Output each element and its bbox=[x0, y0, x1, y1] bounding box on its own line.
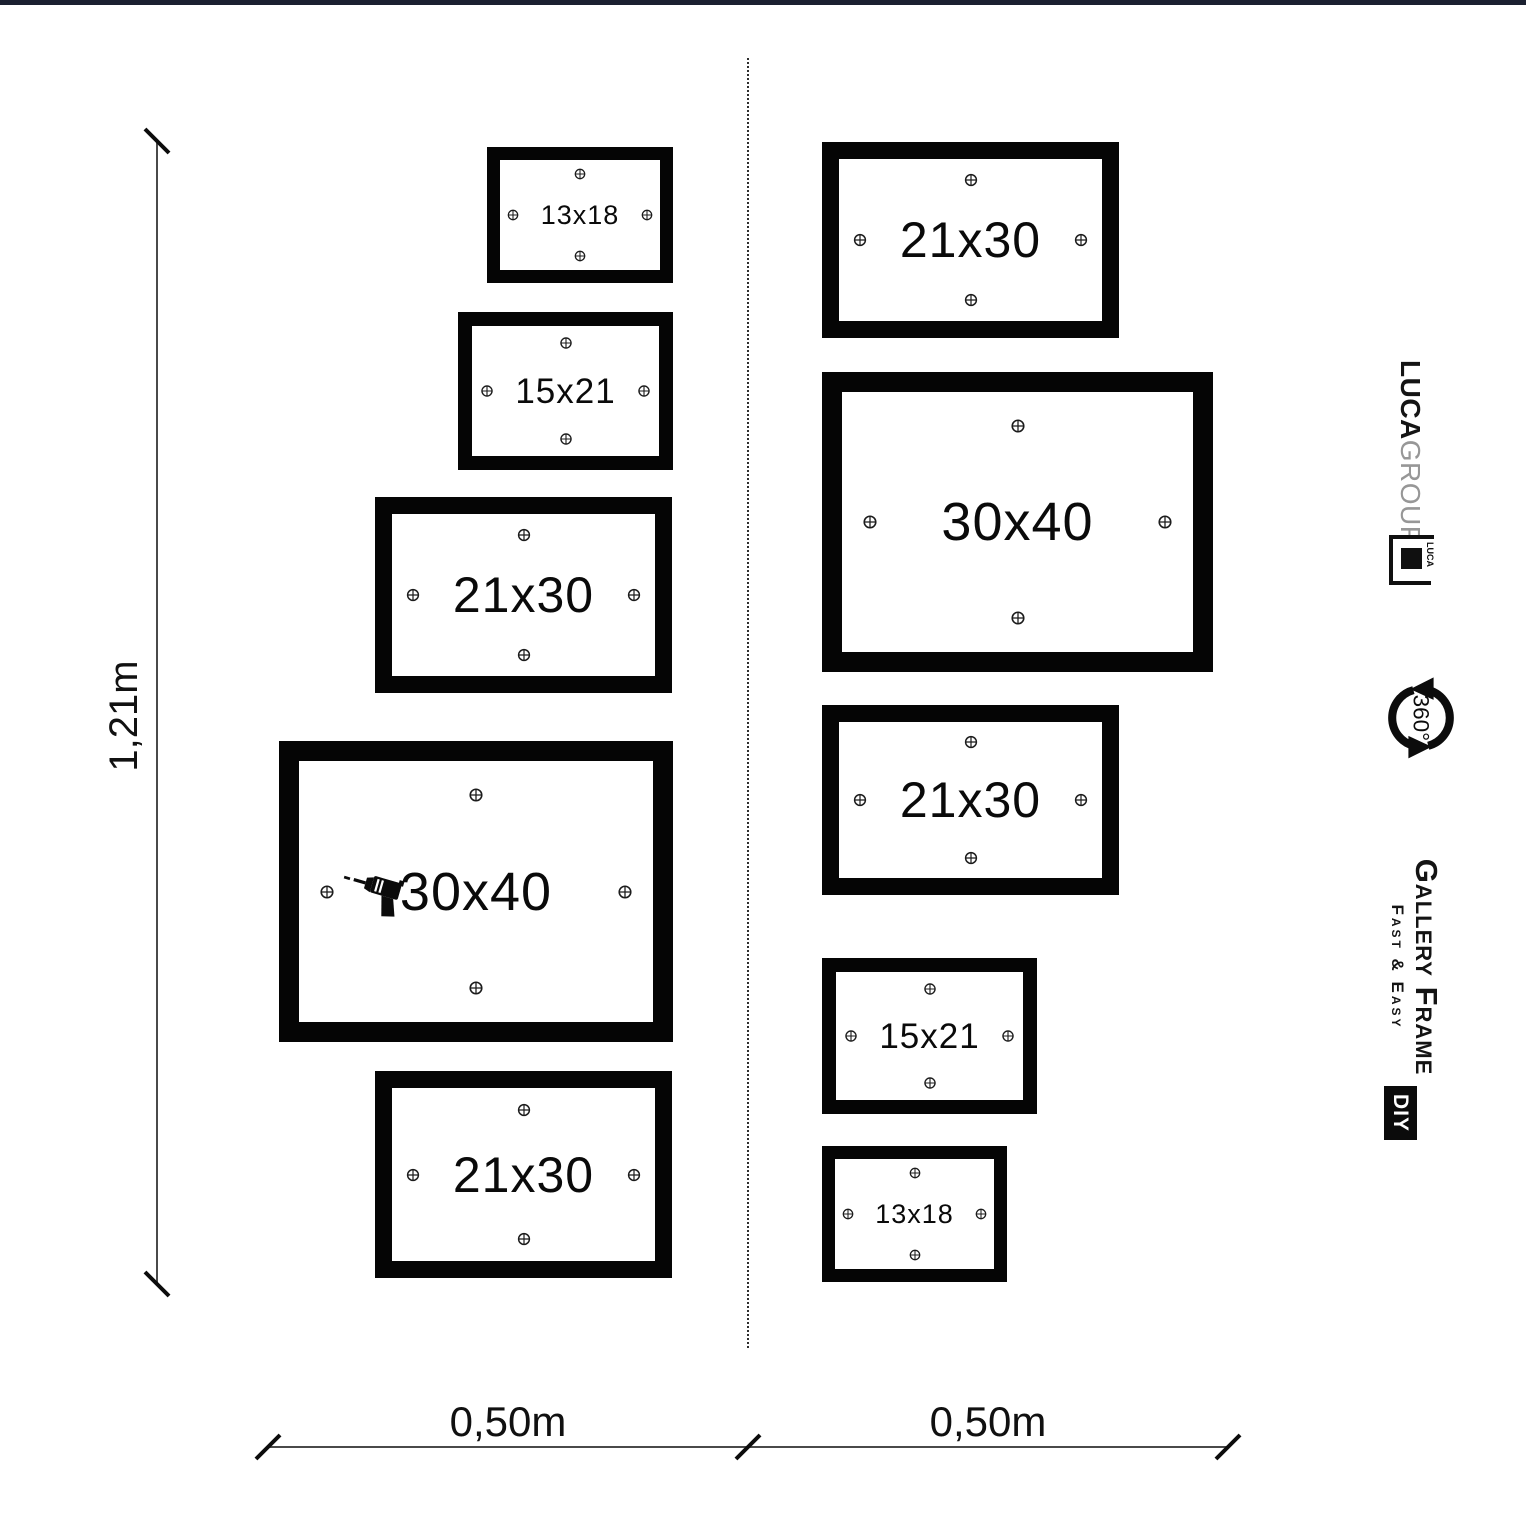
screw-head-icon bbox=[480, 384, 494, 398]
screw-head-icon bbox=[574, 249, 587, 262]
gallery-frame-wordmark: Gallery Frame Fast & Easy bbox=[1386, 853, 1442, 1081]
luca-logo-corner-mark bbox=[1424, 535, 1434, 539]
frame-left-21x30-bottom: 21x30 bbox=[375, 1071, 672, 1278]
gallery-frame-layout-diagram: 1,21m 13x18 15x21 21x30 30x40 bbox=[0, 0, 1526, 1526]
screw-head-icon bbox=[641, 209, 654, 222]
screw-head-icon bbox=[1001, 1029, 1015, 1043]
luca-logo-square bbox=[1401, 548, 1422, 569]
screw-head-icon bbox=[626, 1167, 641, 1182]
screw-head-icon bbox=[1010, 418, 1026, 434]
screw-head-icon bbox=[319, 884, 335, 900]
luca-logo-text: LUCA bbox=[1425, 542, 1435, 567]
frame-right-15x21: 15x21 bbox=[822, 958, 1037, 1114]
frame-right-30x40: 30x40 bbox=[822, 372, 1213, 672]
frame-size-label: 15x21 bbox=[879, 1019, 979, 1054]
screw-head-icon bbox=[516, 647, 531, 662]
gallery-frame-title: Gallery Frame bbox=[1411, 853, 1442, 1081]
luca-group-wordmark-bold: LUCA bbox=[1395, 360, 1426, 440]
height-dimension-label: 1,21m bbox=[103, 655, 145, 777]
screw-head-icon bbox=[617, 884, 633, 900]
screw-head-icon bbox=[862, 514, 878, 530]
frame-right-21x30-mid: 21x30 bbox=[822, 705, 1119, 895]
frame-size-label: 30x40 bbox=[941, 495, 1093, 549]
screw-head-icon bbox=[637, 384, 651, 398]
frame-size-label: 21x30 bbox=[900, 215, 1041, 265]
center-divider-line bbox=[747, 58, 749, 1348]
screw-head-icon bbox=[1157, 514, 1173, 530]
screw-head-icon bbox=[963, 850, 978, 865]
screw-head-icon bbox=[908, 1248, 921, 1261]
screw-head-icon bbox=[853, 793, 868, 808]
gallery-frame-subtitle: Fast & Easy bbox=[1387, 853, 1407, 1081]
frame-size-label: 30x40 bbox=[400, 865, 552, 919]
luca-group-wordmark-light: GROUP bbox=[1395, 440, 1426, 545]
screw-head-icon bbox=[506, 209, 519, 222]
frame-size-label: 21x30 bbox=[453, 570, 594, 620]
screw-head-icon bbox=[908, 1167, 921, 1180]
frame-left-13x18: 13x18 bbox=[487, 147, 673, 283]
screw-head-icon bbox=[923, 982, 937, 996]
frame-left-15x21: 15x21 bbox=[458, 312, 673, 470]
frame-size-label: 15x21 bbox=[515, 374, 615, 409]
screw-head-icon bbox=[853, 233, 868, 248]
drill-icon bbox=[337, 854, 418, 924]
frame-size-label: 13x18 bbox=[541, 202, 620, 229]
frame-left-30x40: 30x40 bbox=[279, 741, 673, 1042]
height-dimension-line bbox=[156, 140, 158, 1284]
screw-head-icon bbox=[468, 787, 484, 803]
screw-head-icon bbox=[963, 292, 978, 307]
screw-head-icon bbox=[406, 588, 421, 603]
drill-icon bbox=[337, 854, 418, 924]
luca-group-wordmark: LUCAGROUP bbox=[1394, 360, 1426, 532]
screw-head-icon bbox=[516, 528, 531, 543]
screw-head-icon bbox=[516, 1231, 531, 1246]
width-right-label: 0,50m bbox=[878, 1398, 1098, 1446]
width-left-label: 0,50m bbox=[398, 1398, 618, 1446]
screw-head-icon bbox=[559, 432, 573, 446]
screw-head-icon bbox=[975, 1208, 988, 1221]
screw-head-icon bbox=[516, 1103, 531, 1118]
diy-badge-label: DIY bbox=[1389, 1094, 1413, 1132]
frame-size-label: 21x30 bbox=[453, 1150, 594, 1200]
rotation-360-icon: 360° bbox=[1376, 669, 1466, 770]
screw-head-icon bbox=[923, 1076, 937, 1090]
frame-left-21x30-top: 21x30 bbox=[375, 497, 672, 693]
frame-size-label: 13x18 bbox=[875, 1201, 954, 1228]
rotation-360-label: 360° bbox=[1409, 695, 1434, 742]
top-border-bar bbox=[0, 0, 1526, 5]
frame-size-label: 21x30 bbox=[900, 775, 1041, 825]
screw-head-icon bbox=[559, 336, 573, 350]
frame-right-21x30-top: 21x30 bbox=[822, 142, 1119, 338]
screw-head-icon bbox=[963, 173, 978, 188]
diy-badge: DIY bbox=[1384, 1086, 1417, 1140]
screw-head-icon bbox=[1010, 610, 1026, 626]
frame-right-13x18: 13x18 bbox=[822, 1146, 1007, 1282]
screw-head-icon bbox=[574, 168, 587, 181]
screw-head-icon bbox=[963, 735, 978, 750]
screw-head-icon bbox=[1073, 233, 1088, 248]
screw-head-icon bbox=[844, 1029, 858, 1043]
screw-head-icon bbox=[626, 588, 641, 603]
screw-head-icon bbox=[468, 980, 484, 996]
screw-head-icon bbox=[406, 1167, 421, 1182]
screw-head-icon bbox=[841, 1208, 854, 1221]
screw-head-icon bbox=[1073, 793, 1088, 808]
luca-logo: LUCA bbox=[1389, 535, 1431, 585]
